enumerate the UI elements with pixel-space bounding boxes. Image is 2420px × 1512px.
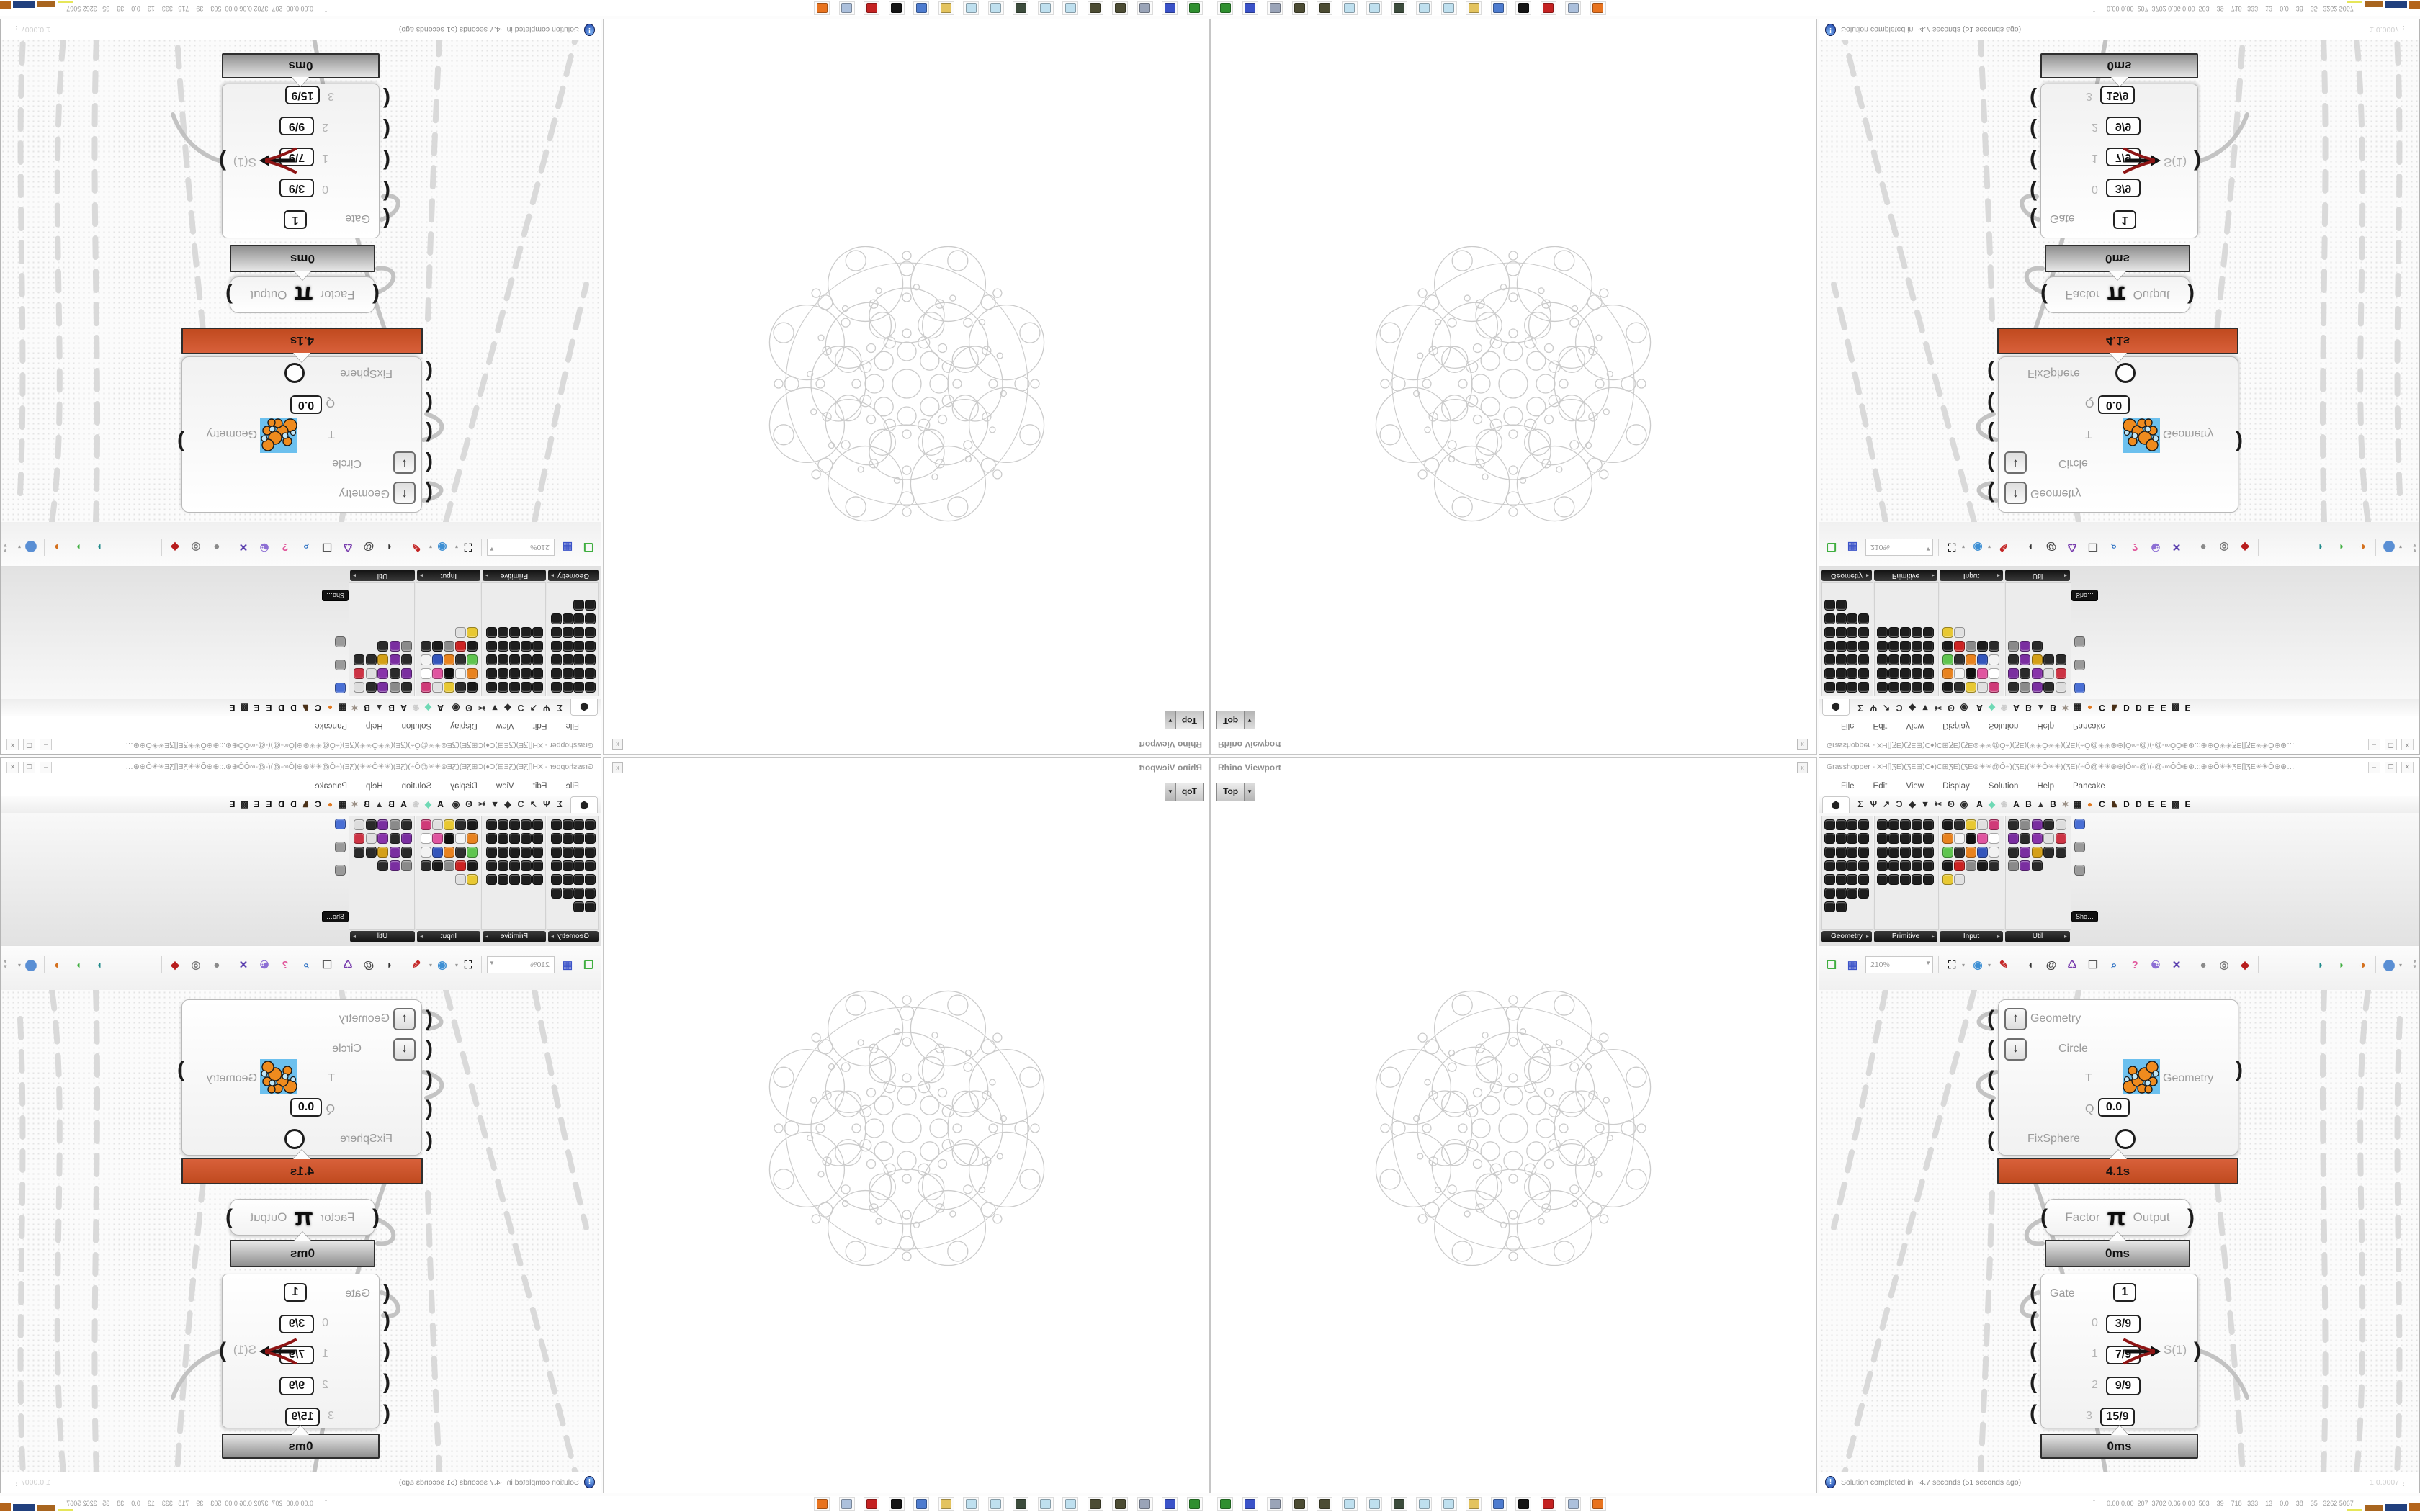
tab-plugin-1[interactable]: ◆ xyxy=(1986,701,1998,715)
component-icon[interactable] xyxy=(467,819,478,830)
search-s-button[interactable]: ⌕ xyxy=(298,539,314,555)
component-icon[interactable] xyxy=(1847,654,1857,665)
menu-display[interactable]: Display xyxy=(450,721,478,730)
cluster-at-button[interactable]: @ xyxy=(361,957,377,973)
component-icon[interactable] xyxy=(1858,668,1869,679)
component-icon[interactable] xyxy=(574,860,585,871)
mesh-sphere-button[interactable]: ● xyxy=(209,957,225,973)
graft-up-button[interactable]: ↑ xyxy=(2004,1008,2027,1030)
component-icon[interactable] xyxy=(563,682,573,693)
tab-glyph-7[interactable]: ʘ xyxy=(462,797,475,811)
component-icon[interactable] xyxy=(2008,847,2019,858)
input-socket[interactable]: ( xyxy=(1987,482,1994,504)
component-icon[interactable] xyxy=(401,860,412,871)
moss-ball-icon-1[interactable] xyxy=(1113,1,1129,15)
component-icon[interactable] xyxy=(486,847,497,858)
input-socket[interactable]: ( xyxy=(1987,1098,1994,1120)
component-icon[interactable] xyxy=(1912,847,1922,858)
component-icon[interactable] xyxy=(455,819,466,830)
component-icon[interactable] xyxy=(354,668,364,679)
component-icon[interactable] xyxy=(509,819,520,830)
component-icon[interactable] xyxy=(563,641,573,652)
notepad-icon-4[interactable] xyxy=(964,1497,980,1511)
component-icon[interactable] xyxy=(1847,860,1857,871)
menu-file[interactable]: File xyxy=(565,782,579,791)
zoom-level-select[interactable]: 210%▼ xyxy=(487,539,555,556)
shaded-preview-button[interactable]: ◗ xyxy=(71,539,86,555)
preview-quality-button[interactable]: ⬤ xyxy=(2381,957,2397,973)
tab-plugin-6[interactable]: B xyxy=(2047,797,2059,811)
display-settings-icon[interactable] xyxy=(914,1497,930,1511)
plugin-mini-icon[interactable] xyxy=(335,865,346,876)
tab-glyph-5[interactable]: ▼ xyxy=(488,797,501,811)
menu-edit[interactable]: Edit xyxy=(1873,782,1888,791)
tab-plugin-17[interactable]: E xyxy=(2182,701,2194,715)
component-icon[interactable] xyxy=(1836,819,1847,830)
component-icon[interactable] xyxy=(1966,860,1976,871)
tab-glyph-8[interactable]: ◉ xyxy=(1958,701,1971,715)
gem-button[interactable]: ◆ xyxy=(2237,957,2253,973)
search-s-button[interactable]: ⌕ xyxy=(298,957,314,973)
component-icon[interactable] xyxy=(2032,819,2043,830)
component-icon[interactable] xyxy=(421,668,431,679)
moss-ball-icon-2[interactable] xyxy=(1317,1,1332,15)
rendered-preview-button[interactable]: ◑ xyxy=(2354,539,2370,555)
input-socket[interactable]: ( xyxy=(372,1207,380,1228)
tab-glyph-5[interactable]: ▼ xyxy=(488,701,501,715)
component-icon[interactable] xyxy=(1824,668,1835,679)
chevron-down-icon[interactable]: ▾ xyxy=(429,962,432,968)
component-icon[interactable] xyxy=(2032,833,2043,844)
component-icon[interactable] xyxy=(1858,641,1869,652)
component-icon[interactable] xyxy=(455,847,466,858)
menu-display[interactable]: Display xyxy=(1942,721,1970,730)
component-icon[interactable] xyxy=(467,654,478,665)
tab-plugin-4[interactable]: B xyxy=(2022,797,2035,811)
component-icon[interactable] xyxy=(1858,682,1869,693)
component-icon[interactable] xyxy=(1923,627,1934,638)
moss-ball-icon-1[interactable] xyxy=(1113,1497,1129,1511)
menu-pancake[interactable]: Pancake xyxy=(315,782,347,791)
input-socket[interactable]: ( xyxy=(426,422,433,444)
toolbar-overflow-icon[interactable]: ▾▾ xyxy=(4,959,7,969)
help-box-button[interactable]: ? xyxy=(277,957,293,973)
menu-edit[interactable]: Edit xyxy=(1873,721,1888,730)
tab-glyph-1[interactable]: Ѱ xyxy=(1867,701,1880,715)
printer-app-icon[interactable] xyxy=(1137,1,1153,15)
pi-factor-node[interactable]: (FactorπOutput) xyxy=(230,1199,375,1236)
component-icon[interactable] xyxy=(532,819,543,830)
grasshopper-canvas[interactable]: ↑Geometry↓CircleTGeometryQ0.0FixSphere((… xyxy=(1819,990,2419,1472)
component-icon[interactable] xyxy=(2032,847,2043,858)
component-icon[interactable] xyxy=(585,668,596,679)
fixsphere-toggle[interactable] xyxy=(284,363,305,383)
component-icon[interactable] xyxy=(563,654,573,665)
preview-eye-button[interactable]: ◉ xyxy=(1970,539,1986,555)
preview-eye-button[interactable]: ◉ xyxy=(1970,957,1986,973)
tab-params-selected[interactable]: ⬢ xyxy=(570,796,598,814)
calculator-icon[interactable] xyxy=(1565,1,1581,15)
pi-factor-node[interactable]: (FactorπOutput) xyxy=(2045,276,2190,313)
component-icon[interactable] xyxy=(1836,600,1847,611)
component-icon[interactable] xyxy=(552,847,563,858)
component-icon[interactable] xyxy=(1900,874,1911,885)
gha-assembly-button[interactable]: ♺ xyxy=(340,957,356,973)
component-icon[interactable] xyxy=(1942,654,1953,665)
component-icon[interactable] xyxy=(1824,641,1835,652)
menu-help[interactable]: Help xyxy=(2037,782,2054,791)
component-icon[interactable] xyxy=(574,833,585,844)
component-icon[interactable] xyxy=(521,654,532,665)
component-icon[interactable] xyxy=(552,819,563,830)
component-icon[interactable] xyxy=(585,641,596,652)
component-icon[interactable] xyxy=(1847,668,1857,679)
mesh-sphere-button[interactable]: ● xyxy=(2195,539,2211,555)
component-icon[interactable] xyxy=(563,874,573,885)
moss-ball-icon-2[interactable] xyxy=(1088,1497,1103,1511)
folder-icon[interactable] xyxy=(938,1497,954,1511)
tab-glyph-2[interactable]: ↗ xyxy=(1880,797,1893,811)
component-icon[interactable] xyxy=(521,668,532,679)
preview-eye-button[interactable]: ◉ xyxy=(434,957,450,973)
notepad-icon-4[interactable] xyxy=(964,1,980,15)
component-icon[interactable] xyxy=(1977,682,1988,693)
component-icon[interactable] xyxy=(532,654,543,665)
notepad-icon-1[interactable] xyxy=(1342,1,1358,15)
component-icon[interactable] xyxy=(354,654,364,665)
component-icon[interactable] xyxy=(1989,847,1999,858)
shaded-preview-button[interactable]: ◗ xyxy=(71,957,86,973)
tab-plugin-4[interactable]: B xyxy=(2022,701,2035,715)
component-icon[interactable] xyxy=(455,654,466,665)
component-icon[interactable] xyxy=(552,668,563,679)
component-icon[interactable] xyxy=(2056,654,2066,665)
notepad-icon-2[interactable] xyxy=(1038,1,1054,15)
output-socket[interactable]: ) xyxy=(177,431,184,453)
red-badge-icon[interactable] xyxy=(1541,1497,1556,1511)
tab-plugin-6[interactable]: B xyxy=(361,797,373,811)
component-icon[interactable] xyxy=(455,833,466,844)
resize-grip[interactable]: ⋮⋮ xyxy=(2401,22,2415,30)
tab-plugin-8[interactable]: ▦ xyxy=(2071,797,2084,811)
component-icon[interactable] xyxy=(1877,654,1888,665)
tab-plugin-2[interactable]: ❀ xyxy=(1998,701,2010,715)
component-icon[interactable] xyxy=(401,668,412,679)
tab-glyph-0[interactable]: Σ xyxy=(1854,701,1867,715)
monitor-app-icon[interactable] xyxy=(1013,1497,1029,1511)
tab-glyph-0[interactable]: Σ xyxy=(553,701,566,715)
component-icon[interactable] xyxy=(1847,627,1857,638)
tab-glyph-1[interactable]: Ѱ xyxy=(540,701,553,715)
component-icon[interactable] xyxy=(1989,654,1999,665)
gate-value-field[interactable]: 1 xyxy=(284,1283,307,1302)
component-icon[interactable] xyxy=(2020,819,2030,830)
plugin-mini-icon[interactable] xyxy=(2074,842,2085,852)
component-icon[interactable] xyxy=(1954,874,1965,885)
component-icon[interactable] xyxy=(563,627,573,638)
notepad-icon-1[interactable] xyxy=(1342,1497,1358,1511)
input-socket[interactable]: ( xyxy=(383,181,390,202)
component-icon[interactable] xyxy=(498,847,508,858)
help-box-button[interactable]: ? xyxy=(2127,539,2143,555)
zoom-level-select[interactable]: 210%▼ xyxy=(1865,956,1933,973)
tab-plugin-7[interactable]: ✶ xyxy=(2059,701,2071,715)
component-icon[interactable] xyxy=(1836,874,1847,885)
component-icon[interactable] xyxy=(1888,641,1899,652)
q-value-field[interactable]: 0.0 xyxy=(2098,1098,2130,1117)
display-settings-icon[interactable] xyxy=(1491,1497,1507,1511)
component-icon[interactable] xyxy=(1824,613,1835,624)
component-icon[interactable] xyxy=(455,627,466,638)
component-icon[interactable] xyxy=(532,847,543,858)
input-socket[interactable]: ( xyxy=(426,392,433,414)
tab-plugin-14[interactable]: E xyxy=(263,797,275,811)
output-socket[interactable]: ) xyxy=(177,1059,184,1081)
wire-display-button[interactable]: ✕ xyxy=(2169,957,2184,973)
rendered-preview-button[interactable]: ◑ xyxy=(2354,957,2370,973)
gate-row-value[interactable]: 3/9 xyxy=(279,179,314,197)
notepad-icon-1[interactable] xyxy=(1063,1497,1079,1511)
fixsphere-cluster-node[interactable]: ↑Geometry↓CircleTGeometryQ0.0FixSphere xyxy=(1998,999,2238,1156)
fixsphere-cluster-node[interactable]: ↑Geometry↓CircleTGeometryQ0.0FixSphere xyxy=(181,999,422,1156)
gate-row-value[interactable]: 15/9 xyxy=(285,1408,320,1426)
component-icon[interactable] xyxy=(1989,668,1999,679)
gate-row-value[interactable]: 3/9 xyxy=(279,1315,314,1333)
tab-plugin-9[interactable]: ● xyxy=(324,701,336,715)
component-icon[interactable] xyxy=(2008,668,2019,679)
component-icon[interactable] xyxy=(377,847,388,858)
palette-caption-util[interactable]: Util▸ xyxy=(350,570,415,581)
component-icon[interactable] xyxy=(486,654,497,665)
help-box-button[interactable]: ? xyxy=(277,539,293,555)
component-icon[interactable] xyxy=(1836,613,1847,624)
component-icon[interactable] xyxy=(521,860,532,871)
input-socket[interactable]: ( xyxy=(2030,1403,2037,1424)
gate-value-field[interactable]: 1 xyxy=(2113,210,2136,229)
menu-solution[interactable]: Solution xyxy=(1989,721,2019,730)
chevron-down-icon[interactable]: ▼ xyxy=(489,960,495,966)
tab-glyph-0[interactable]: Σ xyxy=(1854,797,1867,811)
component-icon[interactable] xyxy=(498,627,508,638)
tab-glyph-1[interactable]: Ѱ xyxy=(540,797,553,811)
component-icon[interactable] xyxy=(1966,682,1976,693)
plugin-mini-icon[interactable] xyxy=(335,842,346,852)
component-icon[interactable] xyxy=(432,682,443,693)
fixsphere-toggle[interactable] xyxy=(2115,1129,2136,1149)
component-icon[interactable] xyxy=(377,860,388,871)
chevron-down-icon[interactable]: ▼ xyxy=(1925,546,1931,552)
component-icon[interactable] xyxy=(401,682,412,693)
tab-glyph-7[interactable]: ʘ xyxy=(462,701,475,715)
resize-grip[interactable]: ⋮⋮ xyxy=(5,1482,19,1490)
close-button[interactable]: ✕ xyxy=(6,739,19,750)
save-file-button[interactable]: ▦ xyxy=(560,957,575,973)
component-icon[interactable] xyxy=(2008,819,2019,830)
component-icon[interactable] xyxy=(1912,654,1922,665)
component-icon[interactable] xyxy=(1942,682,1953,693)
component-icon[interactable] xyxy=(1912,627,1922,638)
fixsphere-cluster-node[interactable]: ↑Geometry↓CircleTGeometryQ0.0FixSphere xyxy=(181,356,422,513)
tab-plugin-12[interactable]: D xyxy=(2120,797,2133,811)
component-icon[interactable] xyxy=(1900,682,1911,693)
component-icon[interactable] xyxy=(366,847,377,858)
printer-app-icon[interactable] xyxy=(1137,1497,1153,1511)
component-icon[interactable] xyxy=(509,654,520,665)
chevron-down-icon[interactable]: ▾ xyxy=(455,544,458,551)
component-icon[interactable] xyxy=(574,668,585,679)
component-icon[interactable] xyxy=(521,682,532,693)
component-icon[interactable] xyxy=(377,682,388,693)
component-icon[interactable] xyxy=(2008,654,2019,665)
gha-assembly-button[interactable]: ♺ xyxy=(2064,957,2080,973)
wire-display-button[interactable]: ✕ xyxy=(236,539,251,555)
component-icon[interactable] xyxy=(390,860,400,871)
tab-glyph-4[interactable]: ◆ xyxy=(501,701,514,715)
gem-button[interactable]: ◆ xyxy=(167,539,183,555)
component-icon[interactable] xyxy=(455,682,466,693)
minimize-button[interactable]: – xyxy=(2368,739,2380,750)
menu-pancake[interactable]: Pancake xyxy=(2073,721,2105,730)
input-socket[interactable]: ( xyxy=(1987,1038,1994,1060)
component-icon[interactable] xyxy=(486,874,497,885)
component-icon[interactable] xyxy=(467,641,478,652)
window-preview-button[interactable]: ❒ xyxy=(2085,539,2101,555)
menu-help[interactable]: Help xyxy=(366,782,383,791)
component-icon[interactable] xyxy=(498,860,508,871)
component-icon[interactable] xyxy=(1836,654,1847,665)
component-icon[interactable] xyxy=(1858,860,1869,871)
tab-plugin-0[interactable]: A xyxy=(434,701,447,715)
component-icon[interactable] xyxy=(1824,860,1835,871)
component-icon[interactable] xyxy=(2008,860,2019,871)
component-icon[interactable] xyxy=(1888,819,1899,830)
component-icon[interactable] xyxy=(1858,874,1869,885)
monitor-app-icon[interactable] xyxy=(1013,1,1029,15)
component-icon[interactable] xyxy=(444,654,454,665)
menu-display[interactable]: Display xyxy=(1942,782,1970,791)
maximize-button[interactable]: ❐ xyxy=(2385,762,2397,773)
component-icon[interactable] xyxy=(1912,819,1922,830)
component-icon[interactable] xyxy=(432,860,443,871)
sketch-flame-button[interactable]: ✎ xyxy=(408,539,424,555)
recorder-app-icon[interactable] xyxy=(1187,1497,1203,1511)
preview-quality-button[interactable]: ⬤ xyxy=(23,539,39,555)
component-icon[interactable] xyxy=(1888,860,1899,871)
notepad-icon-2[interactable] xyxy=(1366,1,1382,15)
input-socket[interactable]: ( xyxy=(2030,1341,2037,1362)
idea-bulb-button[interactable]: ☯ xyxy=(2148,957,2164,973)
toolbar-overflow-icon[interactable]: ▾▾ xyxy=(4,543,7,553)
component-icon[interactable] xyxy=(1923,847,1934,858)
input-socket[interactable]: ( xyxy=(1987,392,1994,414)
gate-button[interactable]: ◖ xyxy=(382,957,398,973)
shaded-preview-button[interactable]: ◗ xyxy=(2334,539,2349,555)
component-icon[interactable] xyxy=(1977,847,1988,858)
input-socket[interactable]: ( xyxy=(2040,284,2048,305)
input-socket[interactable]: ( xyxy=(2040,1207,2048,1228)
component-icon[interactable] xyxy=(1942,627,1953,638)
wire-display-button[interactable]: ✕ xyxy=(236,957,251,973)
component-icon[interactable] xyxy=(1858,819,1869,830)
component-icon[interactable] xyxy=(1954,682,1965,693)
component-icon[interactable] xyxy=(467,627,478,638)
window-preview-button[interactable]: ❒ xyxy=(319,539,335,555)
component-icon[interactable] xyxy=(2020,668,2030,679)
plugin-mini-icon[interactable] xyxy=(2074,660,2085,670)
component-icon[interactable] xyxy=(552,888,563,899)
rings-button[interactable]: ◎ xyxy=(2216,539,2232,555)
maximize-button[interactable]: ❐ xyxy=(2385,739,2397,750)
gate-row-value[interactable]: 15/9 xyxy=(285,86,320,104)
gate-row-value[interactable]: 9/9 xyxy=(2106,1377,2141,1395)
component-icon[interactable] xyxy=(1977,654,1988,665)
component-icon[interactable] xyxy=(467,833,478,844)
input-socket[interactable]: ( xyxy=(426,1130,433,1151)
tab-glyph-8[interactable]: ◉ xyxy=(449,797,462,811)
gate-button[interactable]: ◖ xyxy=(382,539,398,555)
input-socket[interactable]: ( xyxy=(383,1372,390,1393)
tab-plugin-2[interactable]: ❀ xyxy=(1998,797,2010,811)
input-socket[interactable]: ( xyxy=(1987,1068,1994,1090)
component-icon[interactable] xyxy=(2056,847,2066,858)
notepad-icon-3[interactable] xyxy=(988,1497,1004,1511)
cluster-at-button[interactable]: @ xyxy=(361,539,377,555)
component-icon[interactable] xyxy=(421,654,431,665)
component-icon[interactable] xyxy=(1977,819,1988,830)
tab-plugin-12[interactable]: D xyxy=(287,701,300,715)
component-icon[interactable] xyxy=(2056,682,2066,693)
component-icon[interactable] xyxy=(532,668,543,679)
chevron-down-icon[interactable]: ▼ xyxy=(1925,960,1931,966)
component-icon[interactable] xyxy=(1900,833,1911,844)
component-icon[interactable] xyxy=(574,819,585,830)
gate-row-value[interactable]: 15/9 xyxy=(2100,1408,2135,1426)
palette-caption-input[interactable]: Input▸ xyxy=(1940,931,2003,942)
flatten-down-button[interactable]: ↓ xyxy=(2004,1038,2027,1061)
flatten-down-button[interactable]: ↓ xyxy=(2004,451,2027,474)
input-socket[interactable]: ( xyxy=(2030,1372,2037,1393)
preview-quality-button[interactable]: ⬤ xyxy=(2381,539,2397,555)
component-icon[interactable] xyxy=(2043,819,2054,830)
component-icon[interactable] xyxy=(1847,819,1857,830)
component-icon[interactable] xyxy=(486,860,497,871)
fixsphere-cluster-node[interactable]: ↑Geometry↓CircleTGeometryQ0.0FixSphere xyxy=(1998,356,2238,513)
palette-caption-util[interactable]: Util▸ xyxy=(2005,931,2070,942)
chevron-down-icon[interactable]: ▾ xyxy=(2399,962,2402,968)
component-icon[interactable] xyxy=(2020,641,2030,652)
tab-glyph-6[interactable]: ✂ xyxy=(475,797,488,811)
flatten-down-button[interactable]: ↓ xyxy=(393,451,416,474)
notepad-icon-3[interactable] xyxy=(1416,1,1432,15)
moss-ball-icon-2[interactable] xyxy=(1088,1,1103,15)
moss-ball-icon-1[interactable] xyxy=(1292,1,1308,15)
gem-button[interactable]: ◆ xyxy=(2237,539,2253,555)
component-icon[interactable] xyxy=(552,860,563,871)
component-icon[interactable] xyxy=(390,654,400,665)
component-icon[interactable] xyxy=(1877,819,1888,830)
red-badge-icon[interactable] xyxy=(864,1497,880,1511)
output-socket[interactable]: ) xyxy=(2187,1207,2195,1228)
component-icon[interactable] xyxy=(1977,668,1988,679)
component-icon[interactable] xyxy=(563,819,573,830)
output-socket[interactable]: ) xyxy=(219,1340,226,1362)
component-icon[interactable] xyxy=(1858,847,1869,858)
component-icon[interactable] xyxy=(574,641,585,652)
open-file-button[interactable]: ❏ xyxy=(581,539,596,555)
wireframe-preview-button[interactable]: ◗ xyxy=(2313,539,2329,555)
gate-value-field[interactable]: 1 xyxy=(2113,1283,2136,1302)
component-icon[interactable] xyxy=(444,847,454,858)
